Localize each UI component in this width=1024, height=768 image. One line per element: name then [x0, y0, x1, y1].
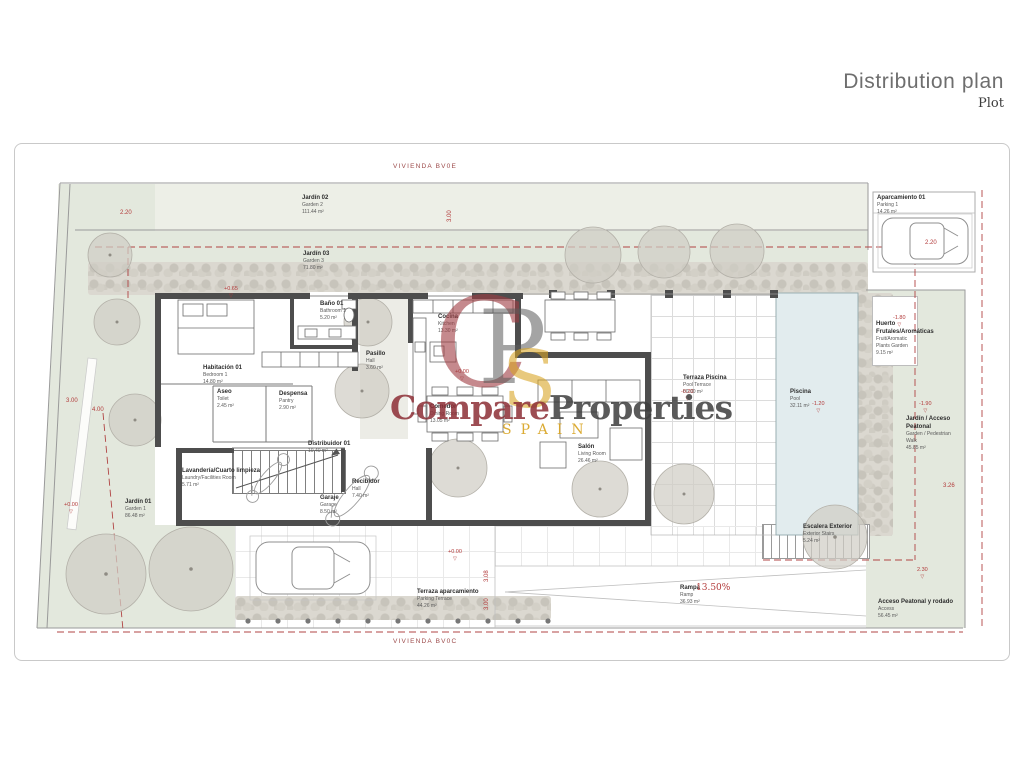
- hedge-top: [88, 262, 868, 295]
- hedge-bottom: [235, 596, 551, 620]
- neighbor-label-top: VIVIENDA BV0E: [393, 163, 457, 170]
- ramp-slope-label: 13.50%: [696, 583, 730, 593]
- terrace-paving-south: [495, 526, 763, 566]
- title-block: Distribution plan Plot: [843, 70, 1004, 111]
- page-subtitle: Plot: [843, 96, 1004, 111]
- fruit-garden-box: [872, 296, 918, 366]
- garden-strip-upper: [58, 184, 868, 231]
- interior-patio: [360, 299, 408, 439]
- interior-staircase: [232, 450, 346, 494]
- garden-area-bottom-left: [155, 525, 235, 628]
- pool-terrace-paving: [651, 295, 776, 535]
- page-title: Distribution plan: [843, 70, 1004, 94]
- exterior-staircase: [762, 524, 870, 559]
- neighbor-label-bottom: VIVIENDA BV0C: [393, 638, 457, 645]
